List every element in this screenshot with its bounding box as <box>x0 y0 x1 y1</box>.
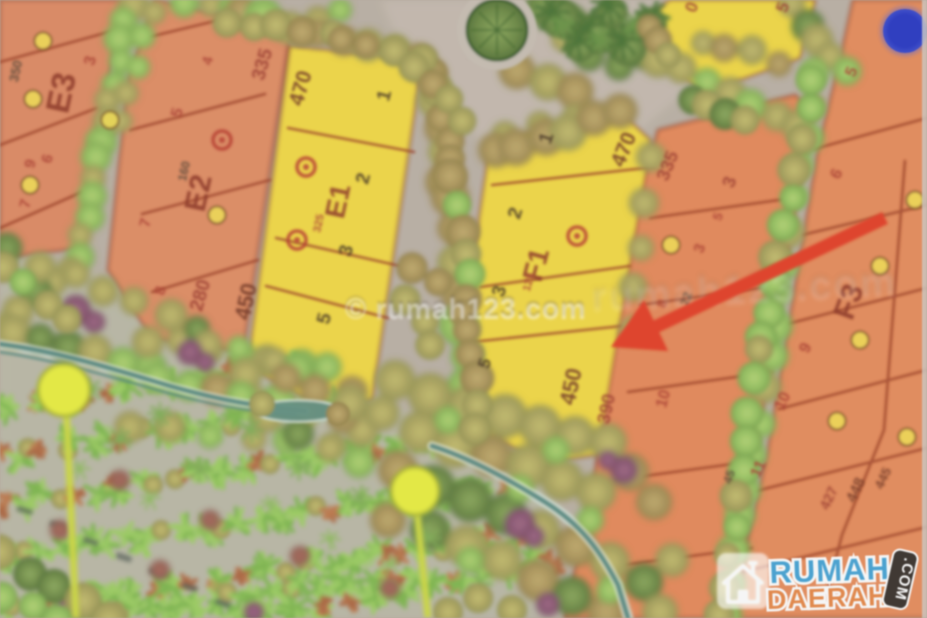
svg-text:DAERAH: DAERAH <box>766 581 888 615</box>
